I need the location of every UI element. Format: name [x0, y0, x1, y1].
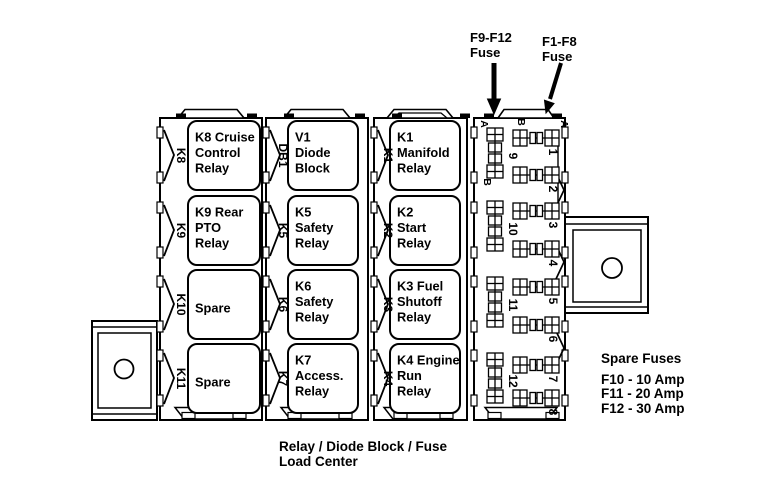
- relay-designator-K11: K11: [174, 368, 188, 390]
- spare-fuse-item: F10 - 10 Amp: [601, 373, 685, 388]
- fuse-element: [537, 282, 543, 293]
- spare-fuse-item: F11 - 20 Amp: [601, 387, 685, 402]
- fuse-element: [530, 206, 536, 217]
- relay-slot-label: Start: [397, 220, 427, 235]
- top-edge-tab: [247, 114, 257, 119]
- fuse-element: [530, 360, 536, 371]
- relay-slot-label: Diode: [295, 145, 331, 160]
- edge-notch: [471, 321, 477, 332]
- relay-designator-K8: K8: [174, 148, 188, 164]
- relay-slot-label: K2: [397, 205, 413, 220]
- edge-notch: [371, 321, 377, 332]
- terminal-label-a: A: [558, 120, 570, 128]
- relay-slot-label: Relay: [295, 384, 330, 399]
- spare-fuses-title: Spare Fuses: [601, 352, 685, 367]
- relay-slot-label: K1: [397, 130, 413, 145]
- fuse-element: [537, 206, 543, 217]
- terminal-label-a: A: [478, 120, 490, 128]
- annotation-f1-f8: F1-F8 Fuse: [542, 34, 577, 64]
- edge-notch: [562, 127, 568, 138]
- top-edge-tab: [355, 114, 365, 119]
- fuse-element: [530, 244, 536, 255]
- fuse-number-7: 7: [546, 376, 560, 383]
- bottom-edge-notch: [182, 413, 195, 419]
- edge-notch: [157, 276, 163, 287]
- spare-fuses-note: Spare Fuses F10 - 10 Amp F11 - 20 Amp F1…: [601, 352, 685, 416]
- edge-notch: [157, 172, 163, 183]
- relay-slot-label: Relay: [397, 384, 432, 399]
- relay-designator-K5: K5: [276, 223, 290, 239]
- edge-notch: [371, 247, 377, 258]
- annotation-f9-f12-line2: Fuse: [470, 45, 512, 60]
- edge-notch: [562, 172, 568, 183]
- mounting-hole-right: [602, 258, 622, 278]
- edge-notch: [263, 276, 269, 287]
- fuse-number-6: 6: [546, 336, 560, 343]
- mounting-hole-left: [115, 360, 134, 379]
- fuse-element: [530, 282, 536, 293]
- f9-f12-arrowhead: [488, 99, 501, 114]
- fuse-number-11: 11: [506, 299, 520, 312]
- relay-slot-label: K4 Engine: [397, 353, 460, 368]
- edge-notch: [371, 202, 377, 213]
- relay-slot-label: Relay: [195, 161, 230, 176]
- edge-notch: [562, 202, 568, 213]
- fuse-number-12: 12: [506, 374, 520, 388]
- relay-designator-K3: K3: [381, 297, 395, 313]
- edge-notch: [471, 276, 477, 287]
- edge-notch: [263, 127, 269, 138]
- relay-slot-label: Relay: [397, 310, 432, 325]
- connector-clip: [178, 110, 244, 119]
- relay-slot-label: Run: [397, 368, 422, 383]
- top-edge-tab: [284, 114, 294, 119]
- relay-slot-label: Safety: [295, 294, 334, 309]
- annotation-f9-f12: F9-F12 Fuse: [470, 30, 512, 60]
- edge-notch: [263, 202, 269, 213]
- load-center-figure: K8K8 CruiseControlRelayK9K9 RearPTORelay…: [0, 0, 760, 499]
- relay-slot-label: Spare: [195, 375, 231, 390]
- edge-notch: [371, 127, 377, 138]
- edge-notch: [562, 321, 568, 332]
- edge-notch: [562, 395, 568, 406]
- top-edge-tab: [484, 114, 494, 119]
- edge-notch: [263, 350, 269, 361]
- bottom-edge-notch: [488, 413, 501, 419]
- edge-notch: [471, 395, 477, 406]
- annotation-f1-f8-line1: F1-F8: [542, 34, 577, 49]
- relay-slot-label: Control: [195, 145, 241, 160]
- edge-notch: [157, 247, 163, 258]
- edge-notch: [371, 172, 377, 183]
- edge-notch: [471, 202, 477, 213]
- relay-designator-K1: K1: [381, 148, 395, 164]
- top-edge-tab: [552, 114, 562, 119]
- edge-notch: [562, 276, 568, 287]
- fuse-number-3: 3: [546, 222, 560, 229]
- fuse-element: [537, 360, 543, 371]
- edge-notch: [471, 127, 477, 138]
- edge-notch: [371, 276, 377, 287]
- relay-designator-DB1: DB1: [276, 143, 290, 167]
- relay-slot-label: K5: [295, 205, 311, 220]
- relay-slot-label: K3 Fuel: [397, 279, 443, 294]
- fuse-number-8: 8: [546, 409, 560, 416]
- edge-notch: [471, 350, 477, 361]
- relay-slot-label: Relay: [295, 310, 330, 325]
- fuse-element: [530, 133, 536, 144]
- terminal-label-b: B: [481, 178, 493, 186]
- relay-slot-label: Manifold: [397, 145, 450, 160]
- relay-slot-label: Safety: [295, 220, 334, 235]
- edge-notch: [157, 395, 163, 406]
- terminal-label-b: B: [515, 118, 527, 126]
- relay-slot-label: Spare: [195, 301, 231, 316]
- edge-notch: [157, 350, 163, 361]
- fuse-number-10: 10: [506, 222, 520, 236]
- fuse-element: [530, 320, 536, 331]
- edge-notch: [471, 172, 477, 183]
- relay-designator-K10: K10: [174, 293, 188, 315]
- top-edge-tab: [460, 114, 470, 119]
- relay-slot-label: K9 Rear: [195, 205, 243, 220]
- edge-notch: [157, 127, 163, 138]
- relay-slot-label: K7: [295, 353, 311, 368]
- relay-designator-K7: K7: [276, 371, 290, 387]
- fuse-number-5: 5: [546, 298, 560, 305]
- f1-f8-arrow-shaft: [550, 63, 561, 99]
- fuse-number-9: 9: [506, 153, 520, 160]
- relay-designator-K2: K2: [381, 223, 395, 239]
- relay-slot-label: K8 Cruise: [195, 130, 255, 145]
- edge-notch: [157, 202, 163, 213]
- relay-designator-K6: K6: [276, 297, 290, 313]
- annotation-f1-f8-line2: Fuse: [542, 49, 577, 64]
- edge-notch: [371, 395, 377, 406]
- edge-notch: [562, 247, 568, 258]
- edge-notch: [263, 247, 269, 258]
- fuse-element: [537, 393, 543, 404]
- fuse-element: [537, 133, 543, 144]
- edge-notch: [471, 247, 477, 258]
- top-edge-tab: [176, 114, 186, 119]
- figure-caption: Relay / Diode Block / Fuse Load Center: [279, 440, 447, 469]
- relay-slot-label: Shutoff: [397, 294, 443, 309]
- edge-notch: [371, 350, 377, 361]
- relay-slot-label: Relay: [397, 236, 432, 251]
- relay-slot-label: Access.: [295, 368, 343, 383]
- relay-slot-label: Relay: [397, 161, 432, 176]
- top-edge-tab: [392, 114, 402, 119]
- fuse-element: [537, 170, 543, 181]
- relay-slot-label: Relay: [295, 236, 330, 251]
- edge-notch: [263, 395, 269, 406]
- spare-fuse-item: F12 - 30 Amp: [601, 402, 685, 417]
- edge-notch: [263, 172, 269, 183]
- relay-slot-label: Relay: [195, 236, 230, 251]
- figure-caption-line2: Load Center: [279, 455, 447, 470]
- fuse-number-4: 4: [546, 260, 560, 267]
- relay-slot-label: PTO: [195, 220, 221, 235]
- fuse-element: [530, 393, 536, 404]
- edge-notch: [263, 321, 269, 332]
- annotation-f9-f12-line1: F9-F12: [470, 30, 512, 45]
- figure-caption-line1: Relay / Diode Block / Fuse: [279, 440, 447, 455]
- load-center-diagram: K8K8 CruiseControlRelayK9K9 RearPTORelay…: [0, 0, 760, 499]
- edge-notch: [157, 321, 163, 332]
- relay-slot-label: K6: [295, 279, 311, 294]
- fuse-element: [530, 170, 536, 181]
- relay-slot-label: Block: [295, 161, 331, 176]
- relay-designator-K4: K4: [381, 371, 395, 387]
- fuse-element: [537, 320, 543, 331]
- relay-designator-K9: K9: [174, 223, 188, 239]
- relay-slot-label: V1: [295, 130, 311, 145]
- fuse-element: [537, 244, 543, 255]
